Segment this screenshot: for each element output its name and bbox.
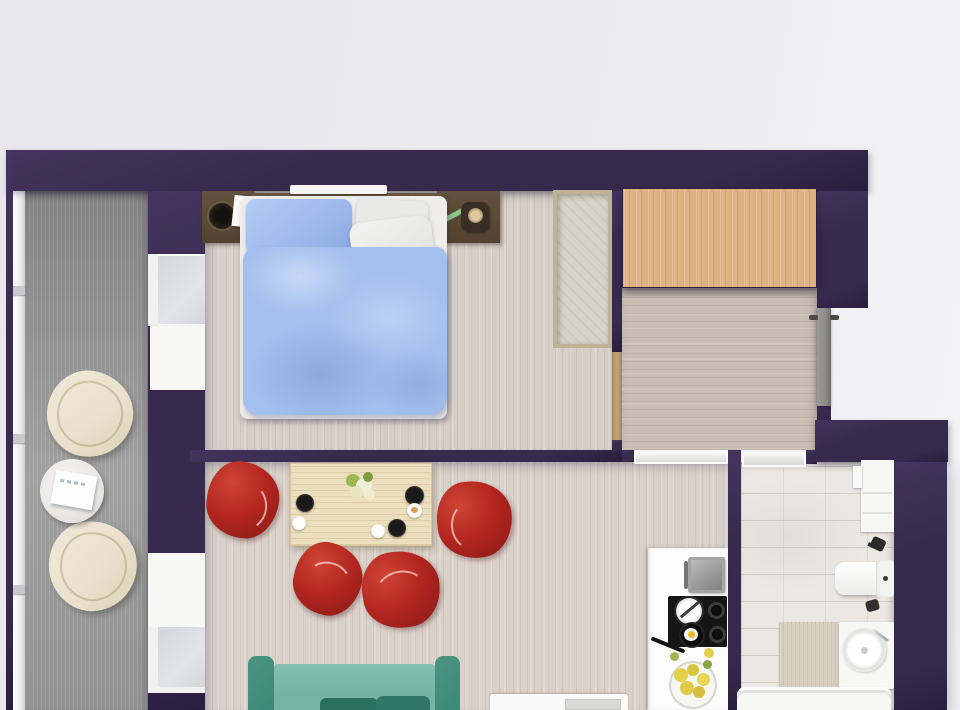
sofa-arm-right — [435, 656, 460, 710]
bedroom-window-glass — [158, 254, 205, 326]
wall-bathroom-right — [894, 462, 947, 710]
built-in-closet — [553, 190, 612, 348]
bedroom-window-frame — [148, 254, 158, 326]
wall-bath-door-jamb — [806, 450, 817, 464]
entry-door-handle-inner — [809, 315, 818, 320]
window-mullion — [13, 434, 25, 443]
entry-door-handle-outer — [830, 315, 839, 320]
wardrobe — [622, 188, 817, 288]
wall-entry-right — [817, 191, 868, 308]
media-console-tray — [565, 699, 621, 710]
pastry — [411, 507, 418, 513]
entry-door — [817, 308, 831, 406]
bedroom-window-sill-panel — [150, 326, 205, 390]
wall-living-bathroom-divider — [728, 450, 741, 710]
kitchen-sink-handle — [684, 561, 688, 589]
wall-bathroom-top — [815, 420, 948, 462]
sofa — [248, 654, 460, 710]
floor-plan-render — [0, 0, 960, 710]
balcony-window-band — [13, 191, 25, 710]
dark-plate — [388, 519, 406, 537]
white-saucer — [292, 516, 306, 530]
flower-yellow — [693, 686, 705, 698]
bathroom-cabinet — [861, 460, 894, 532]
white-cup — [371, 524, 385, 538]
cabinet-shelf-line — [863, 492, 892, 494]
bedroom-door-frame — [612, 352, 622, 440]
sofa-cushion — [376, 696, 430, 710]
headboard-light-strip — [290, 185, 387, 194]
cabinet-shelf-line — [863, 512, 892, 514]
dark-plate — [296, 494, 314, 512]
bedside-lamp-shade — [468, 208, 483, 223]
wall-hall-stub — [622, 450, 634, 462]
magazine-stack — [50, 470, 97, 511]
flower-yellow — [697, 673, 710, 686]
bouquet-bloom — [350, 486, 363, 498]
flower-leaf — [670, 652, 679, 661]
living-window-frame — [148, 627, 158, 687]
flower-yellow — [674, 668, 688, 682]
hallway-floor — [622, 286, 817, 450]
bouquet-leaf — [363, 472, 373, 482]
flower-leaf — [703, 660, 712, 669]
window-mullion — [13, 286, 25, 295]
bathtub — [737, 687, 891, 710]
bouquet-bloom — [364, 489, 375, 500]
wall-left-outer — [6, 150, 13, 710]
burner-top — [708, 602, 725, 619]
wall-bedroom-hall-upper — [612, 191, 622, 352]
toilet-flush-button — [883, 576, 888, 581]
living-window-glass — [158, 627, 205, 687]
kitchen-sink-unit — [688, 557, 725, 593]
living-window-panel — [148, 553, 205, 627]
kitchen-opening-threshold — [634, 451, 728, 464]
wall-bedroom-hall-stub — [612, 440, 622, 452]
bed-duvet — [243, 247, 447, 415]
toilet-bowl — [835, 562, 880, 595]
egg-yolk — [688, 631, 695, 638]
bathroom-door-threshold — [742, 452, 806, 467]
wall-top — [6, 150, 868, 191]
sink-drain — [861, 647, 868, 654]
flower-yellow — [687, 664, 699, 676]
sofa-cushion — [320, 698, 378, 710]
flower-yellow — [680, 681, 694, 695]
window-mullion — [13, 585, 25, 594]
bathroom-cabinet-notch — [853, 466, 862, 488]
living-window-frame-bottom — [148, 687, 205, 693]
flower-yellow — [704, 648, 714, 658]
wall-bedroom-living-divider — [190, 450, 622, 462]
burner-bottom — [709, 626, 726, 643]
sofa-arm-left — [248, 656, 274, 710]
